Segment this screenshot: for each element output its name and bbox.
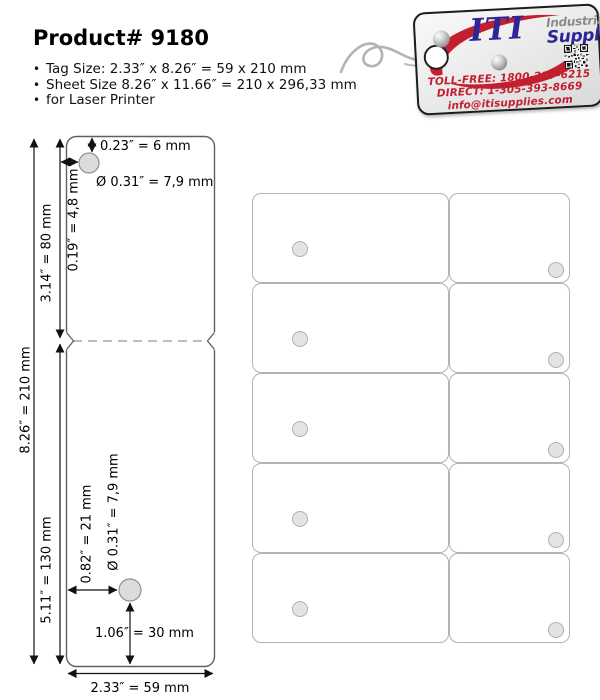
label-tag-width: 2.33″ = 59 mm [91,681,190,696]
tag-cell [449,373,570,463]
top-hole [79,153,99,173]
tag-cell [252,463,449,553]
label-hole-top-offset: 0.23″ = 6 mm [100,139,191,154]
label-top-section-height: 3.14″ = 80 mm [40,204,55,303]
tag-cell-hole [292,421,308,437]
brand-text-column: Industrial Supplies [546,13,600,47]
label-hole-bottom-offset: 1.06″ = 30 mm [95,626,194,641]
iti-logo-tag: ITI Industrial Supplies TOLL-FREE: 1800-… [412,3,600,116]
tag-cell-hole [292,241,308,257]
brand-iti: ITI [469,13,526,47]
tag-cell-hole [292,511,308,527]
tag-cell [449,553,570,643]
tag-cell [252,193,449,283]
label-hole-bottom-diameter: Ø 0.31″ = 7,9 mm [107,453,122,570]
tag-cell-hole [548,262,564,278]
tag-cell-hole [292,601,308,617]
tag-cell-hole [548,352,564,368]
tag-cell-hole [292,331,308,347]
label-hole-top-diameter: Ø 0.31″ = 7,9 mm [96,175,213,190]
tag-cell [449,283,570,373]
tag-cell-hole [548,622,564,638]
tag-cell [252,373,449,463]
qr-code-icon [563,44,589,69]
tag-cell [449,193,570,283]
tag-cell [252,283,449,373]
label-bottom-section-height: 5.11″ = 130 mm [40,516,55,623]
tag-cell [252,553,449,643]
sheet-preview [252,193,570,643]
tag-cell-hole [548,442,564,458]
bottom-hole [119,579,141,601]
label-hole-bottom-side: 0.82″ = 21 mm [80,485,95,584]
tag-cell-hole [548,532,564,548]
tag-cell [449,463,570,553]
label-hole-top-side: 0.19″ = 4,8 mm [67,168,82,271]
label-tag-height: 8.26″ = 210 mm [19,346,34,453]
